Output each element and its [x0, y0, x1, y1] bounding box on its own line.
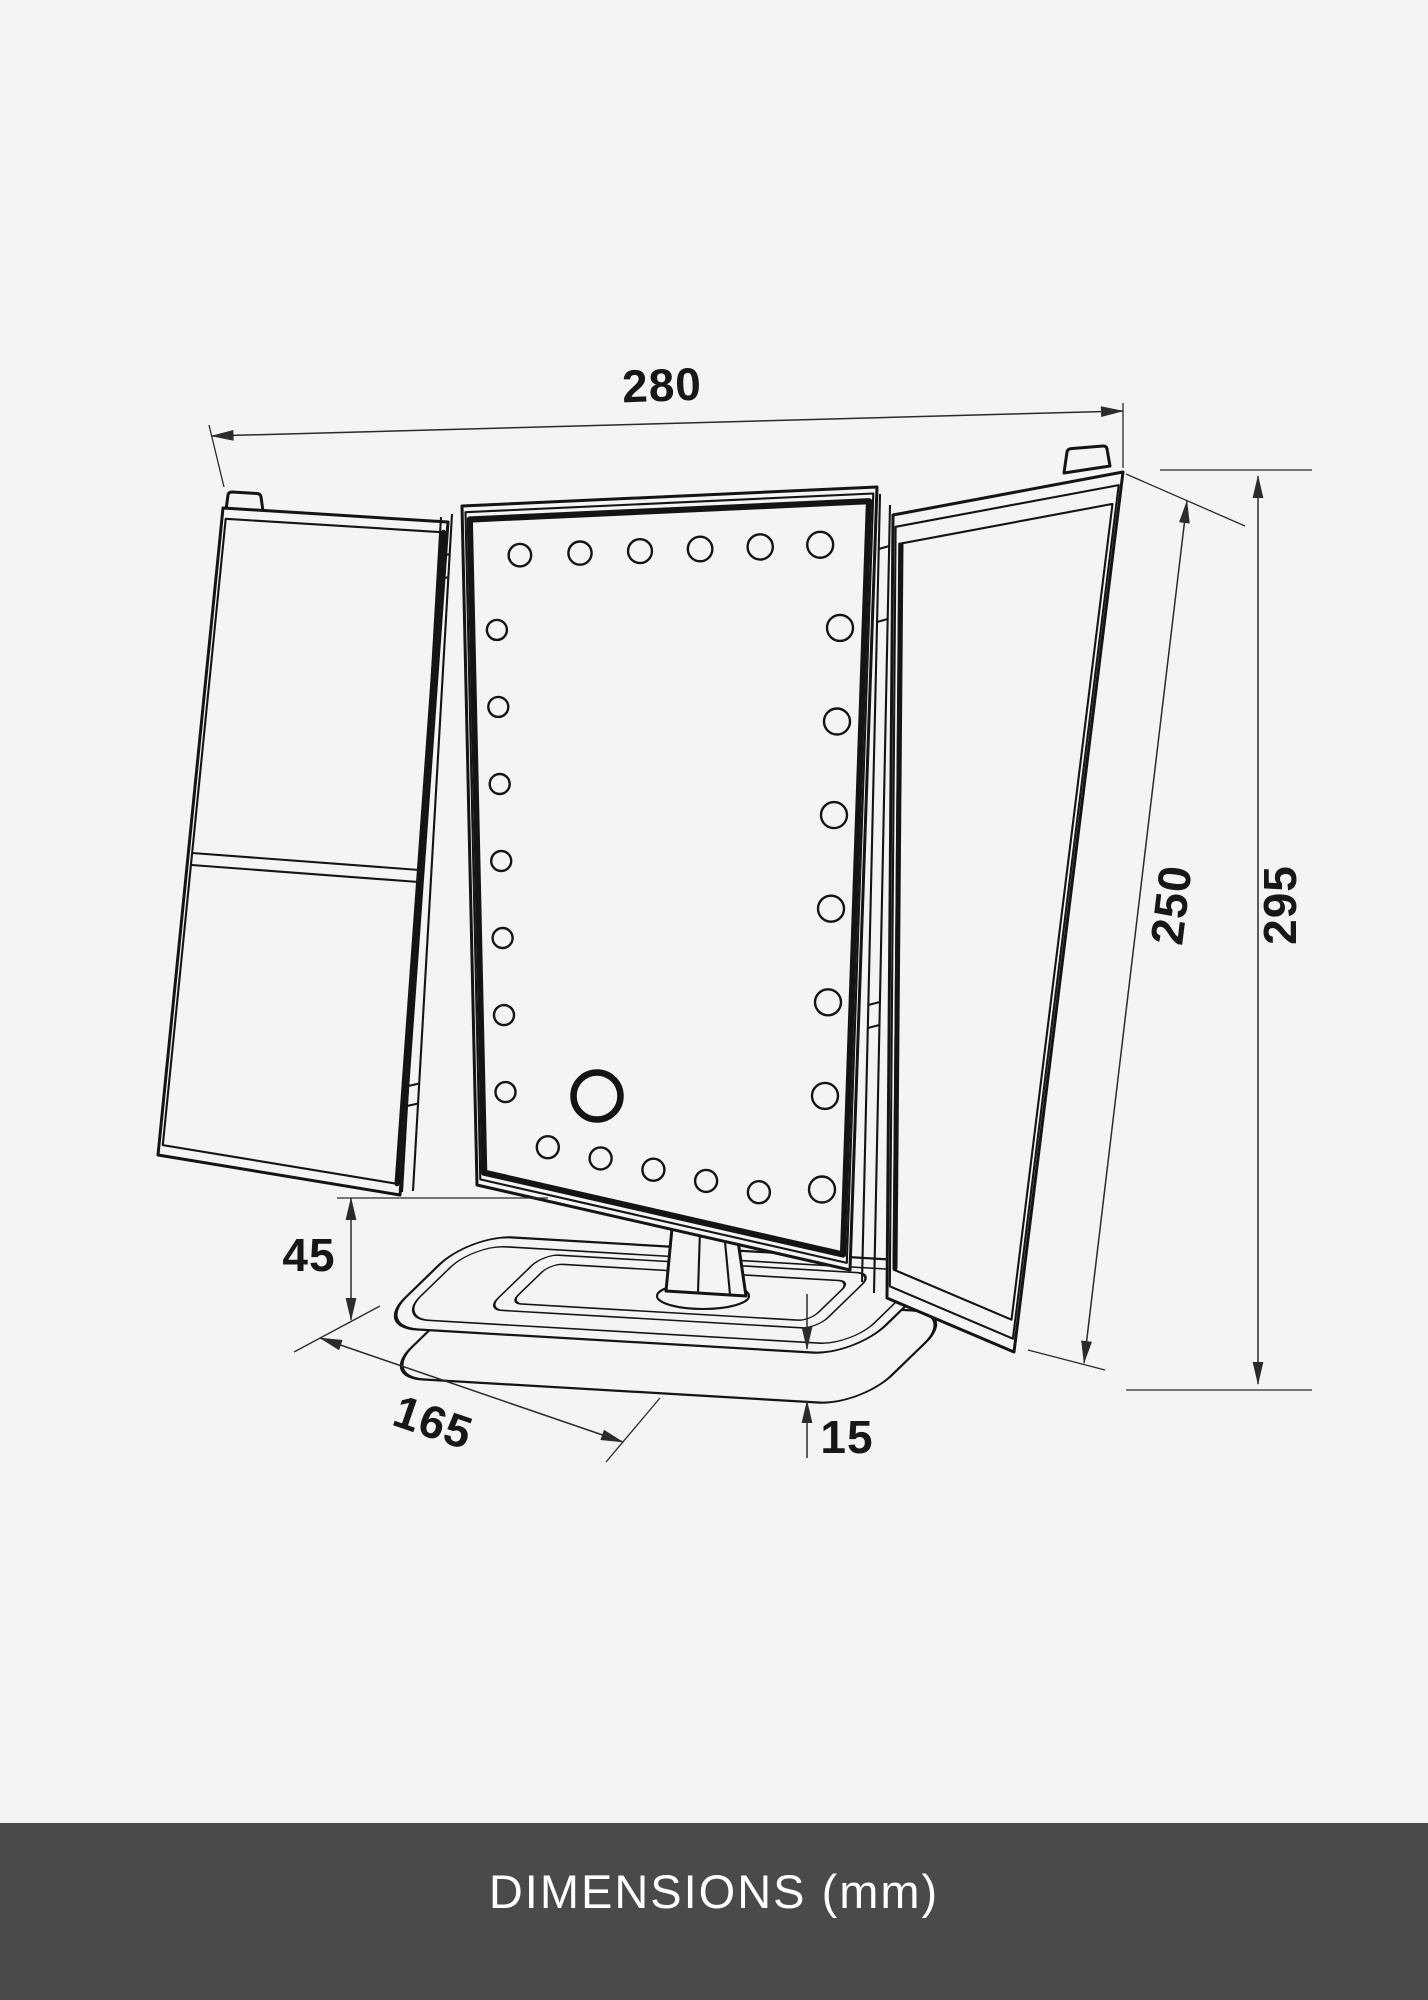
center-panel-outer	[462, 487, 877, 1270]
dimension-width-280: 280	[209, 358, 1123, 487]
right-panel-outer	[887, 472, 1123, 1352]
dim-label-165: 165	[387, 1384, 479, 1459]
mirror-left-panel	[158, 492, 448, 1195]
dim-label-45: 45	[282, 1229, 335, 1281]
dim-label-250: 250	[1140, 862, 1201, 947]
technical-drawing: 280 250 295 45 165 15	[0, 0, 1428, 1823]
dim-label-295: 295	[1254, 865, 1306, 945]
dim-label-280: 280	[621, 358, 703, 413]
mirror-center-panel	[462, 487, 877, 1270]
base-tray	[375, 1235, 956, 1405]
dim-label-15: 15	[820, 1411, 873, 1463]
mirror-right-panel	[887, 446, 1123, 1352]
caption-bar: DIMENSIONS (mm)	[0, 1823, 1428, 2000]
caption-text: DIMENSIONS (mm)	[489, 1864, 939, 1919]
right-panel-tab	[1064, 446, 1110, 473]
